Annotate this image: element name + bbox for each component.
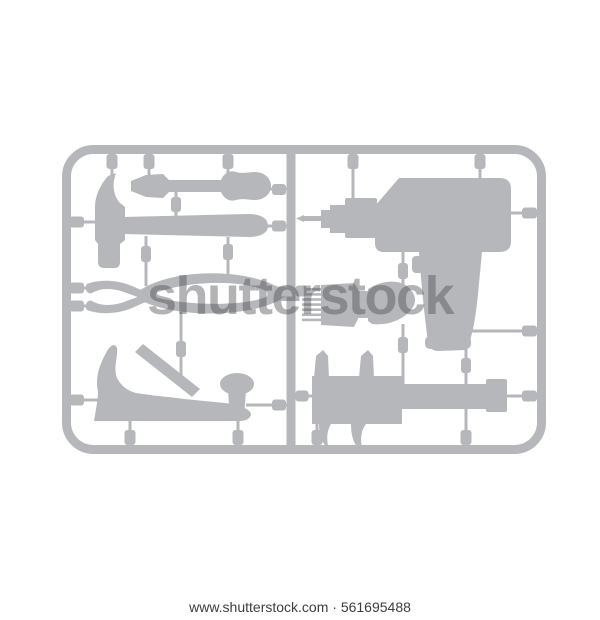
caliper-upper-jaw bbox=[359, 350, 374, 378]
image-caption: www.shutterstock.com · 561695488 bbox=[189, 599, 411, 615]
connector-nub bbox=[272, 221, 286, 232]
connector-nub bbox=[176, 341, 186, 357]
caliper-beam bbox=[400, 384, 490, 409]
connector-nub bbox=[223, 154, 234, 169]
connector-nub bbox=[69, 283, 84, 294]
connector-nub bbox=[398, 263, 408, 279]
vernier-caliper-icon bbox=[312, 350, 507, 453]
brush-bristle bbox=[302, 319, 322, 322]
connector-nub bbox=[69, 217, 84, 228]
connector-nub bbox=[223, 244, 233, 260]
connector-nub bbox=[69, 395, 84, 406]
pliers-handles bbox=[137, 273, 283, 313]
brush-handle bbox=[368, 282, 415, 325]
connector-nub bbox=[144, 154, 155, 169]
connector-nub bbox=[272, 400, 286, 411]
caliper-upper-jaw bbox=[314, 350, 329, 378]
brush-bristle bbox=[302, 288, 322, 291]
connector-nub bbox=[348, 154, 359, 169]
caliper-head bbox=[312, 376, 402, 424]
paint-brush-icon bbox=[302, 282, 415, 327]
combination-pliers-icon bbox=[86, 273, 283, 313]
connector-nub bbox=[296, 391, 309, 402]
connector-nub bbox=[171, 197, 181, 212]
connector-nub bbox=[522, 391, 537, 402]
brush-bristle bbox=[302, 293, 322, 296]
connector-nub bbox=[522, 208, 537, 219]
connector-nub bbox=[398, 337, 408, 353]
plane-knob-stem bbox=[228, 390, 246, 419]
stock-image: shutterstock www.shutterstock.com · 5616… bbox=[0, 0, 600, 620]
connector-nub bbox=[522, 326, 537, 337]
brush-bristle bbox=[302, 308, 322, 311]
tool-silhouettes bbox=[86, 171, 511, 453]
model-kit-sprue bbox=[0, 0, 600, 620]
drill-grip-base bbox=[425, 336, 471, 349]
hand-plane-icon bbox=[94, 344, 254, 421]
caliper-end-block bbox=[486, 379, 507, 412]
connector-nub bbox=[141, 246, 151, 262]
connector-nub bbox=[461, 430, 472, 445]
connector-nub bbox=[461, 358, 471, 373]
connector-nub bbox=[475, 154, 486, 169]
drill-chuck-step bbox=[330, 205, 347, 233]
brush-bristle bbox=[302, 298, 322, 301]
drill-chuck bbox=[345, 198, 377, 238]
connector-nub bbox=[107, 154, 118, 169]
flat-screwdriver-icon bbox=[131, 171, 271, 200]
brush-ferrule-step bbox=[358, 291, 368, 318]
connector-nub bbox=[233, 430, 244, 445]
hammer-handle bbox=[123, 214, 268, 237]
drill-bit bbox=[304, 216, 322, 221]
connector-nub bbox=[69, 301, 84, 312]
brush-bristle bbox=[302, 314, 322, 317]
drill-chuck-nose bbox=[321, 210, 332, 228]
connector-nub bbox=[272, 184, 286, 195]
connector-nub bbox=[125, 430, 136, 445]
hammer-head bbox=[95, 173, 125, 268]
pliers-lower-jaw bbox=[86, 295, 150, 313]
brush-bristle bbox=[302, 303, 322, 306]
drill-bit-tip bbox=[296, 215, 304, 222]
drill-body bbox=[375, 178, 511, 252]
drill-trigger bbox=[412, 256, 423, 273]
brush-ferrule bbox=[321, 283, 358, 327]
plane-blade bbox=[135, 344, 200, 397]
